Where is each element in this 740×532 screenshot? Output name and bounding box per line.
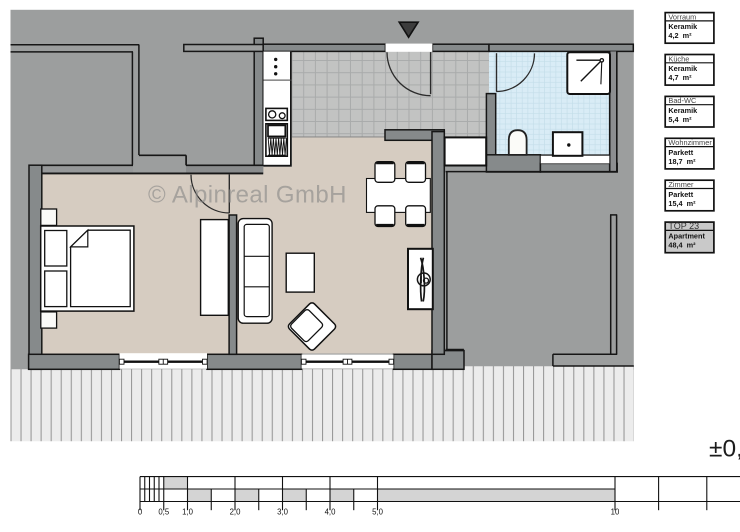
svg-text:0,5: 0,5 <box>158 508 170 517</box>
svg-text:Wohnzimmer: Wohnzimmer <box>668 138 712 147</box>
svg-text:Keramik: Keramik <box>668 22 698 31</box>
svg-text:Parkett: Parkett <box>668 190 693 199</box>
svg-text:Parkett: Parkett <box>668 148 693 157</box>
svg-text:Keramik: Keramik <box>668 64 698 73</box>
svg-text:Vorraum: Vorraum <box>668 12 696 21</box>
svg-text:10: 10 <box>611 508 620 517</box>
svg-text:±0,0: ±0,0 <box>709 436 740 463</box>
svg-text:3,0: 3,0 <box>277 508 289 517</box>
svg-text:5,4 m²: 5,4 m² <box>668 115 692 124</box>
svg-text:4,0: 4,0 <box>325 508 337 517</box>
svg-text:Keramik: Keramik <box>668 106 698 115</box>
svg-text:4,2 m²: 4,2 m² <box>668 31 692 40</box>
svg-text:15,4 m²: 15,4 m² <box>668 199 696 208</box>
svg-text:Bad-WC: Bad-WC <box>668 96 697 105</box>
svg-text:2,0: 2,0 <box>230 508 242 517</box>
svg-text:48,4 m²: 48,4 m² <box>668 241 696 250</box>
svg-text:Apartment: Apartment <box>668 232 705 241</box>
svg-text:5,0: 5,0 <box>372 508 384 517</box>
svg-text:Zimmer: Zimmer <box>668 180 694 189</box>
svg-text:4,7 m²: 4,7 m² <box>668 73 692 82</box>
svg-text:0: 0 <box>138 508 143 517</box>
svg-text:© Alpinreal GmbH: © Alpinreal GmbH <box>148 182 347 209</box>
svg-text:TOP 23: TOP 23 <box>668 221 699 231</box>
svg-text:Küche: Küche <box>668 54 689 63</box>
svg-text:18,7 m²: 18,7 m² <box>668 157 696 166</box>
svg-text:1,0: 1,0 <box>182 508 194 517</box>
